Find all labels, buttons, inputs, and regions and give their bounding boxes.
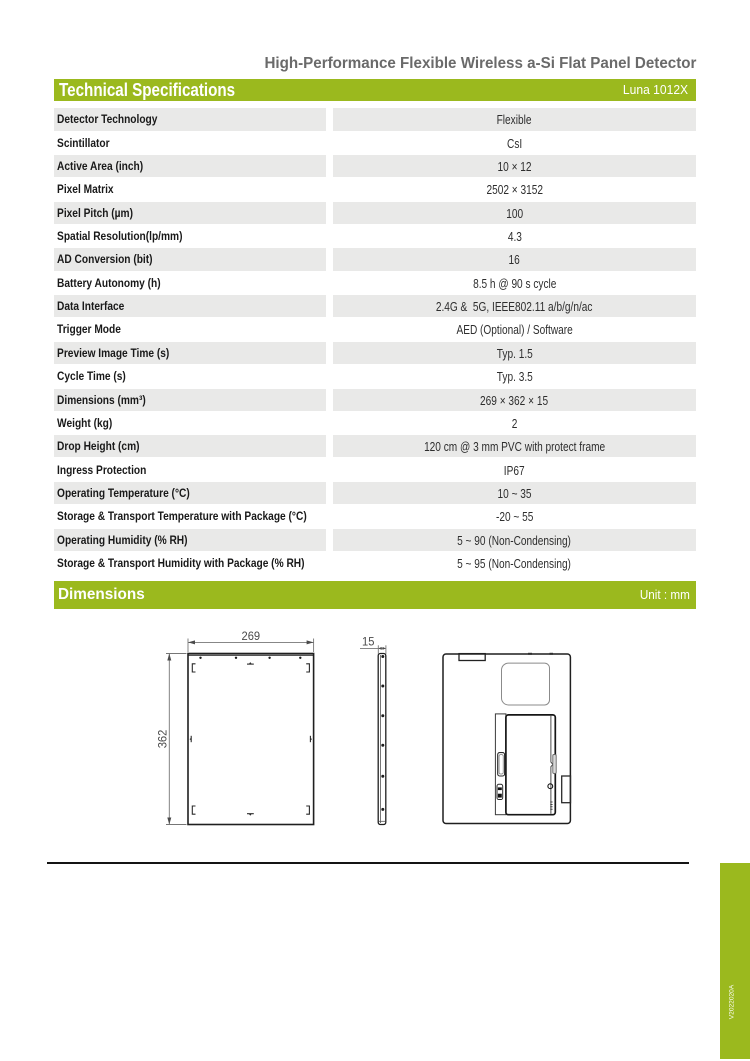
svg-text:269: 269 (241, 631, 260, 643)
svg-text:362: 362 (157, 730, 169, 749)
svg-text:15: 15 (362, 636, 374, 648)
